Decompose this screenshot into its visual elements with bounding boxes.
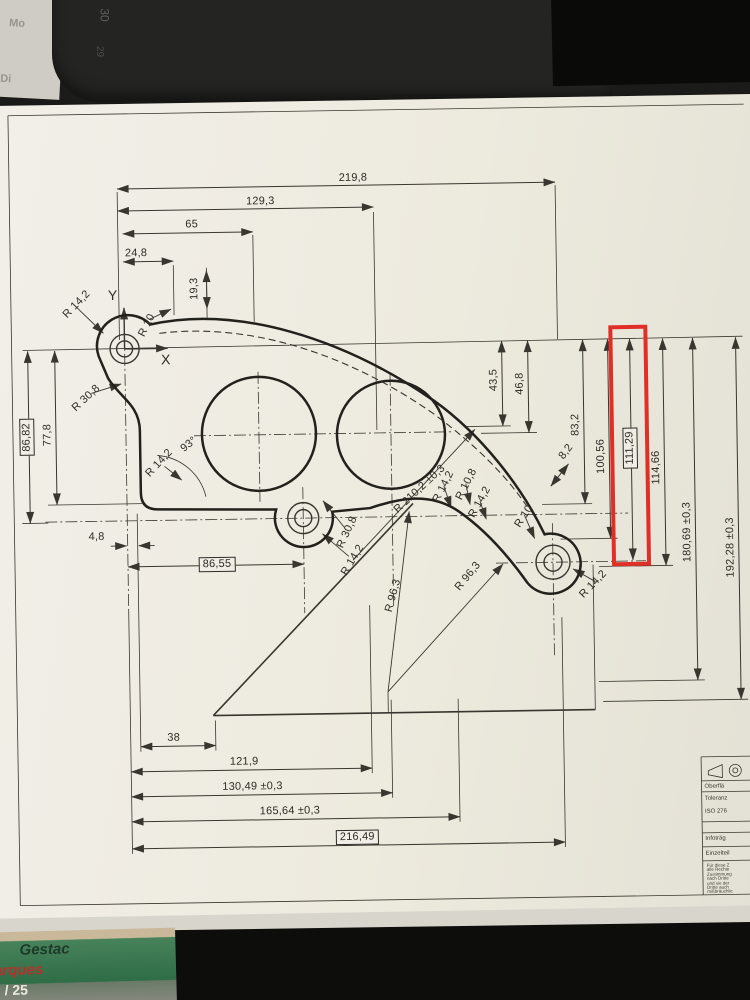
- titleblock-row-2: Toleranz: [705, 796, 728, 802]
- drawing-sheet: 219,8 129,3 65 24,8 19,3 Y X 86,82 77,8 …: [0, 0, 750, 1000]
- dim-right-1: 43,5: [488, 369, 499, 391]
- dim-left-boxed: 86,82: [19, 419, 35, 456]
- green-package: Gestac arques / 25: [0, 928, 177, 1000]
- package-text-1: Gestac: [19, 940, 69, 958]
- axis-x-label: X: [161, 352, 171, 366]
- package-text-2: arques: [0, 961, 43, 979]
- black-object-bottom: [165, 922, 750, 1000]
- dim-top-2: 129,3: [246, 196, 275, 207]
- titleblock-row-3: ISO 276: [705, 809, 727, 815]
- dim-overall-width: 219,8: [339, 173, 368, 184]
- dim-right-5: 100,56: [596, 439, 608, 474]
- dim-right-3: 83,2: [570, 414, 581, 436]
- dim-left-2: 77,8: [42, 424, 53, 446]
- fine-print-line: mißbräuchlic: [707, 890, 750, 895]
- dim-left-3: 4,8: [89, 532, 105, 543]
- titleblock-row-4: Infoträg: [705, 836, 725, 842]
- dim-top-4: 24,8: [125, 248, 147, 259]
- axis-y-label: Y: [108, 288, 118, 302]
- dim-bottom-5-boxed: 216,49: [336, 829, 379, 845]
- titleblock-row-5: Einzelteil: [706, 850, 730, 856]
- dim-right-2: 46,8: [515, 373, 526, 395]
- highlight-box: [608, 325, 651, 567]
- dim-left-4-boxed: 86,55: [199, 557, 236, 573]
- photo-of-technical-drawing: Mo Di 30 29: [0, 0, 750, 1000]
- dim-right-8: 180,69 ±0,3: [682, 502, 694, 562]
- dim-bottom-4: 165,64 ±0,3: [260, 805, 320, 817]
- dim-bottom-1: 38: [167, 733, 180, 744]
- dim-top-5: 19,3: [189, 278, 200, 300]
- dim-right-7: 114,66: [651, 450, 663, 484]
- titleblock-row-1: Oberflä: [704, 784, 724, 790]
- projection-symbol-icon: [708, 764, 741, 778]
- package-text-3: / 25: [4, 982, 28, 999]
- dim-right-9: 192,28 ±0,3: [725, 517, 737, 577]
- dim-top-3: 65: [185, 219, 198, 230]
- dim-bottom-2: 121,9: [230, 756, 259, 767]
- dim-bottom-3: 130,49 ±0,3: [222, 781, 282, 793]
- titleblock-fine-print: Für diese Z alle Rechte Zustimmung nach …: [707, 863, 750, 895]
